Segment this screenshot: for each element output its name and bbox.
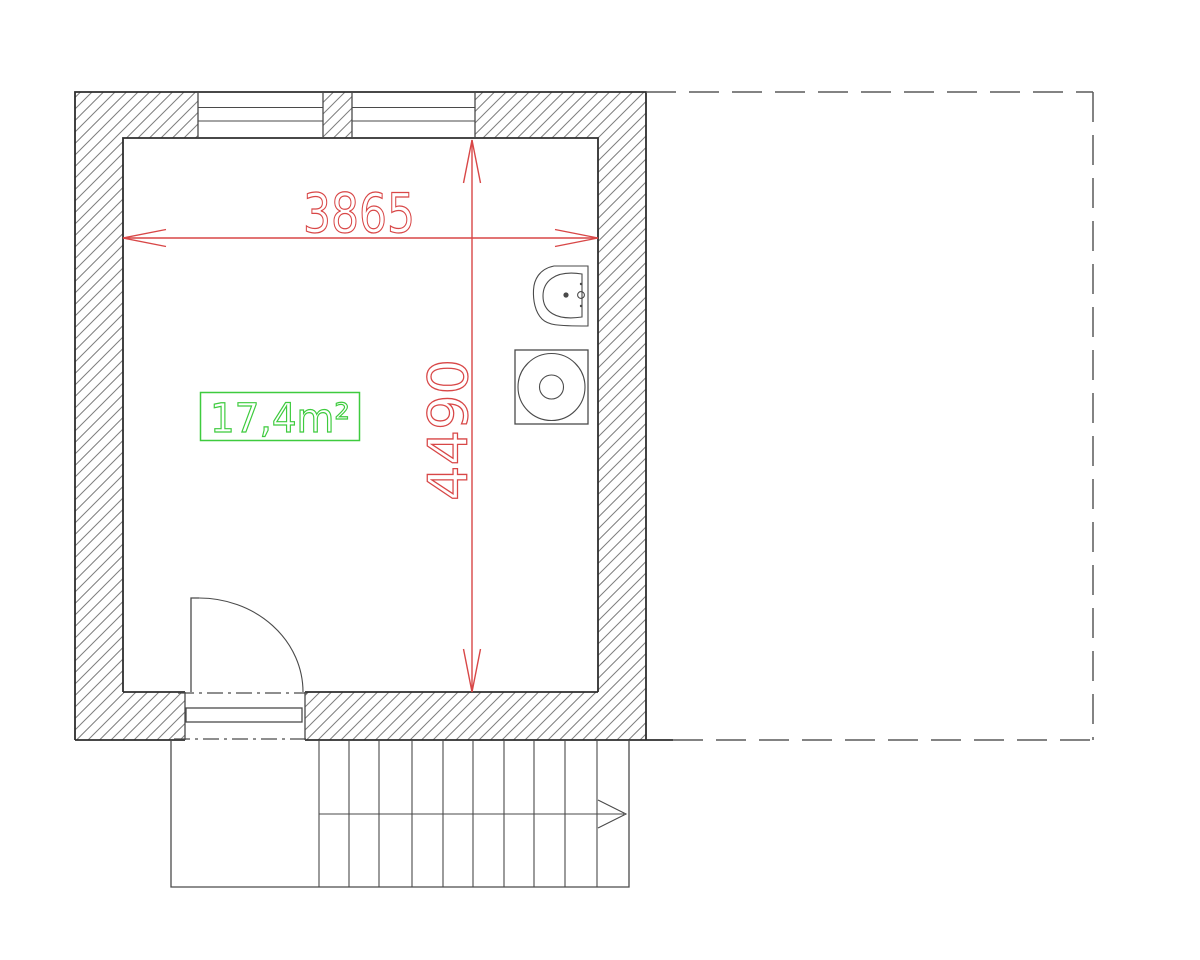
dimension-height: 4490 — [417, 140, 481, 692]
wall-bottom-right-segment — [305, 692, 598, 740]
wall-top-pier — [323, 92, 352, 138]
wall-left — [75, 92, 123, 740]
door — [174, 598, 307, 739]
wall-top-left-segment — [123, 92, 198, 138]
window-1-glazing — [198, 108, 323, 122]
window-2-glazing — [352, 108, 475, 122]
staircase — [171, 740, 629, 887]
washing-machine-symbol — [515, 350, 588, 424]
dimension-width-value: 3865 — [303, 182, 415, 245]
area-label-value: 17,4m² — [210, 396, 350, 442]
washbasin-handle-2 — [580, 305, 582, 307]
wall-bottom-left-segment — [123, 692, 185, 740]
washing-machine-drum-center — [540, 375, 564, 399]
dimension-height-value: 4490 — [417, 359, 480, 501]
adjacent-area-dashed-outline — [646, 92, 1093, 740]
wall-top-right-segment — [475, 92, 598, 138]
washbasin-symbol — [533, 266, 588, 326]
door-threshold — [186, 708, 302, 722]
wall-right — [598, 92, 646, 740]
floor-plan-drawing: 3865 4490 17,4m² — [0, 0, 1200, 960]
floor-plan-canvas: 3865 4490 17,4m² — [0, 0, 1200, 960]
door-jambs — [185, 692, 305, 740]
door-leaf — [191, 598, 199, 692]
door-swing-arc — [199, 598, 303, 692]
washbasin-handle-1 — [580, 283, 582, 285]
washbasin-drain — [563, 292, 568, 297]
washbasin-bowl — [543, 273, 582, 318]
area-label: 17,4m² — [201, 393, 360, 443]
washing-machine-drum — [518, 354, 585, 421]
dimension-width: 3865 — [123, 182, 598, 247]
washbasin-tap — [578, 292, 585, 299]
washing-machine-body — [515, 350, 588, 424]
